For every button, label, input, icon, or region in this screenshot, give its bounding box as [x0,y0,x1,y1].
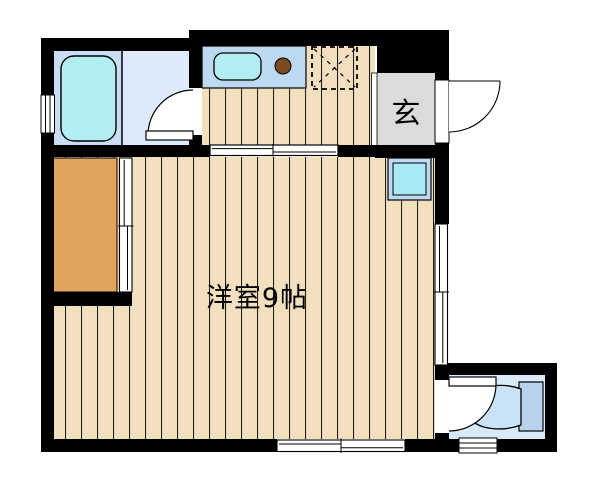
closet-door-frame [120,158,133,292]
sliding-partition-frame [210,145,338,156]
wall-washroom-bottom [41,145,202,157]
entrance-door-leaf [435,80,449,143]
wall-toilet-top [435,363,557,375]
toilet-tank-icon [519,382,543,431]
bottom-window [277,439,405,454]
genkan-step [372,73,378,148]
sliding-partition [210,144,338,157]
entrance-door [435,80,500,143]
washer-space-inner [393,163,426,195]
right-window [434,224,450,365]
wall-bottom-left [41,439,277,452]
bathroom-window [41,95,55,133]
wall-toilet-bottom-right [497,439,557,452]
entrance-door-swing [449,81,500,132]
floorplan: 玄 洋室9帖 [0,0,600,490]
kitchen-sink-icon [214,53,261,80]
wall-right-toilet-lower [435,433,449,439]
bathtub-icon [61,56,116,141]
stove-burner-icon [275,58,291,74]
wall-partition-right [338,145,449,157]
wall-top-bath [41,38,202,51]
wall-genkan-top [377,30,449,73]
toilet-door-leaf [449,377,496,386]
main-room-label: 洋室9帖 [206,283,308,314]
toilet-window-frame [459,438,497,453]
wall-toilet-bottom-left [435,439,459,452]
wall-partition-left [202,145,210,157]
closet [52,158,117,292]
entrance-label: 玄 [391,96,420,130]
bathroom-window-frame [41,95,55,133]
wall-toilet-right [545,363,557,452]
wall-closet-bottom [41,292,132,306]
right-window-frame [435,224,448,365]
toilet-window [459,438,497,453]
washroom-door-leaf [146,131,193,140]
wall-right-upper [435,158,449,224]
wall-washroom-kitchen-upper [189,38,202,88]
toilet-door-opening [435,380,449,433]
wall-top-kitchen [189,30,377,46]
closet-sliding-door [118,158,134,292]
floorplan-drawing: 玄 洋室9帖 [0,0,600,490]
